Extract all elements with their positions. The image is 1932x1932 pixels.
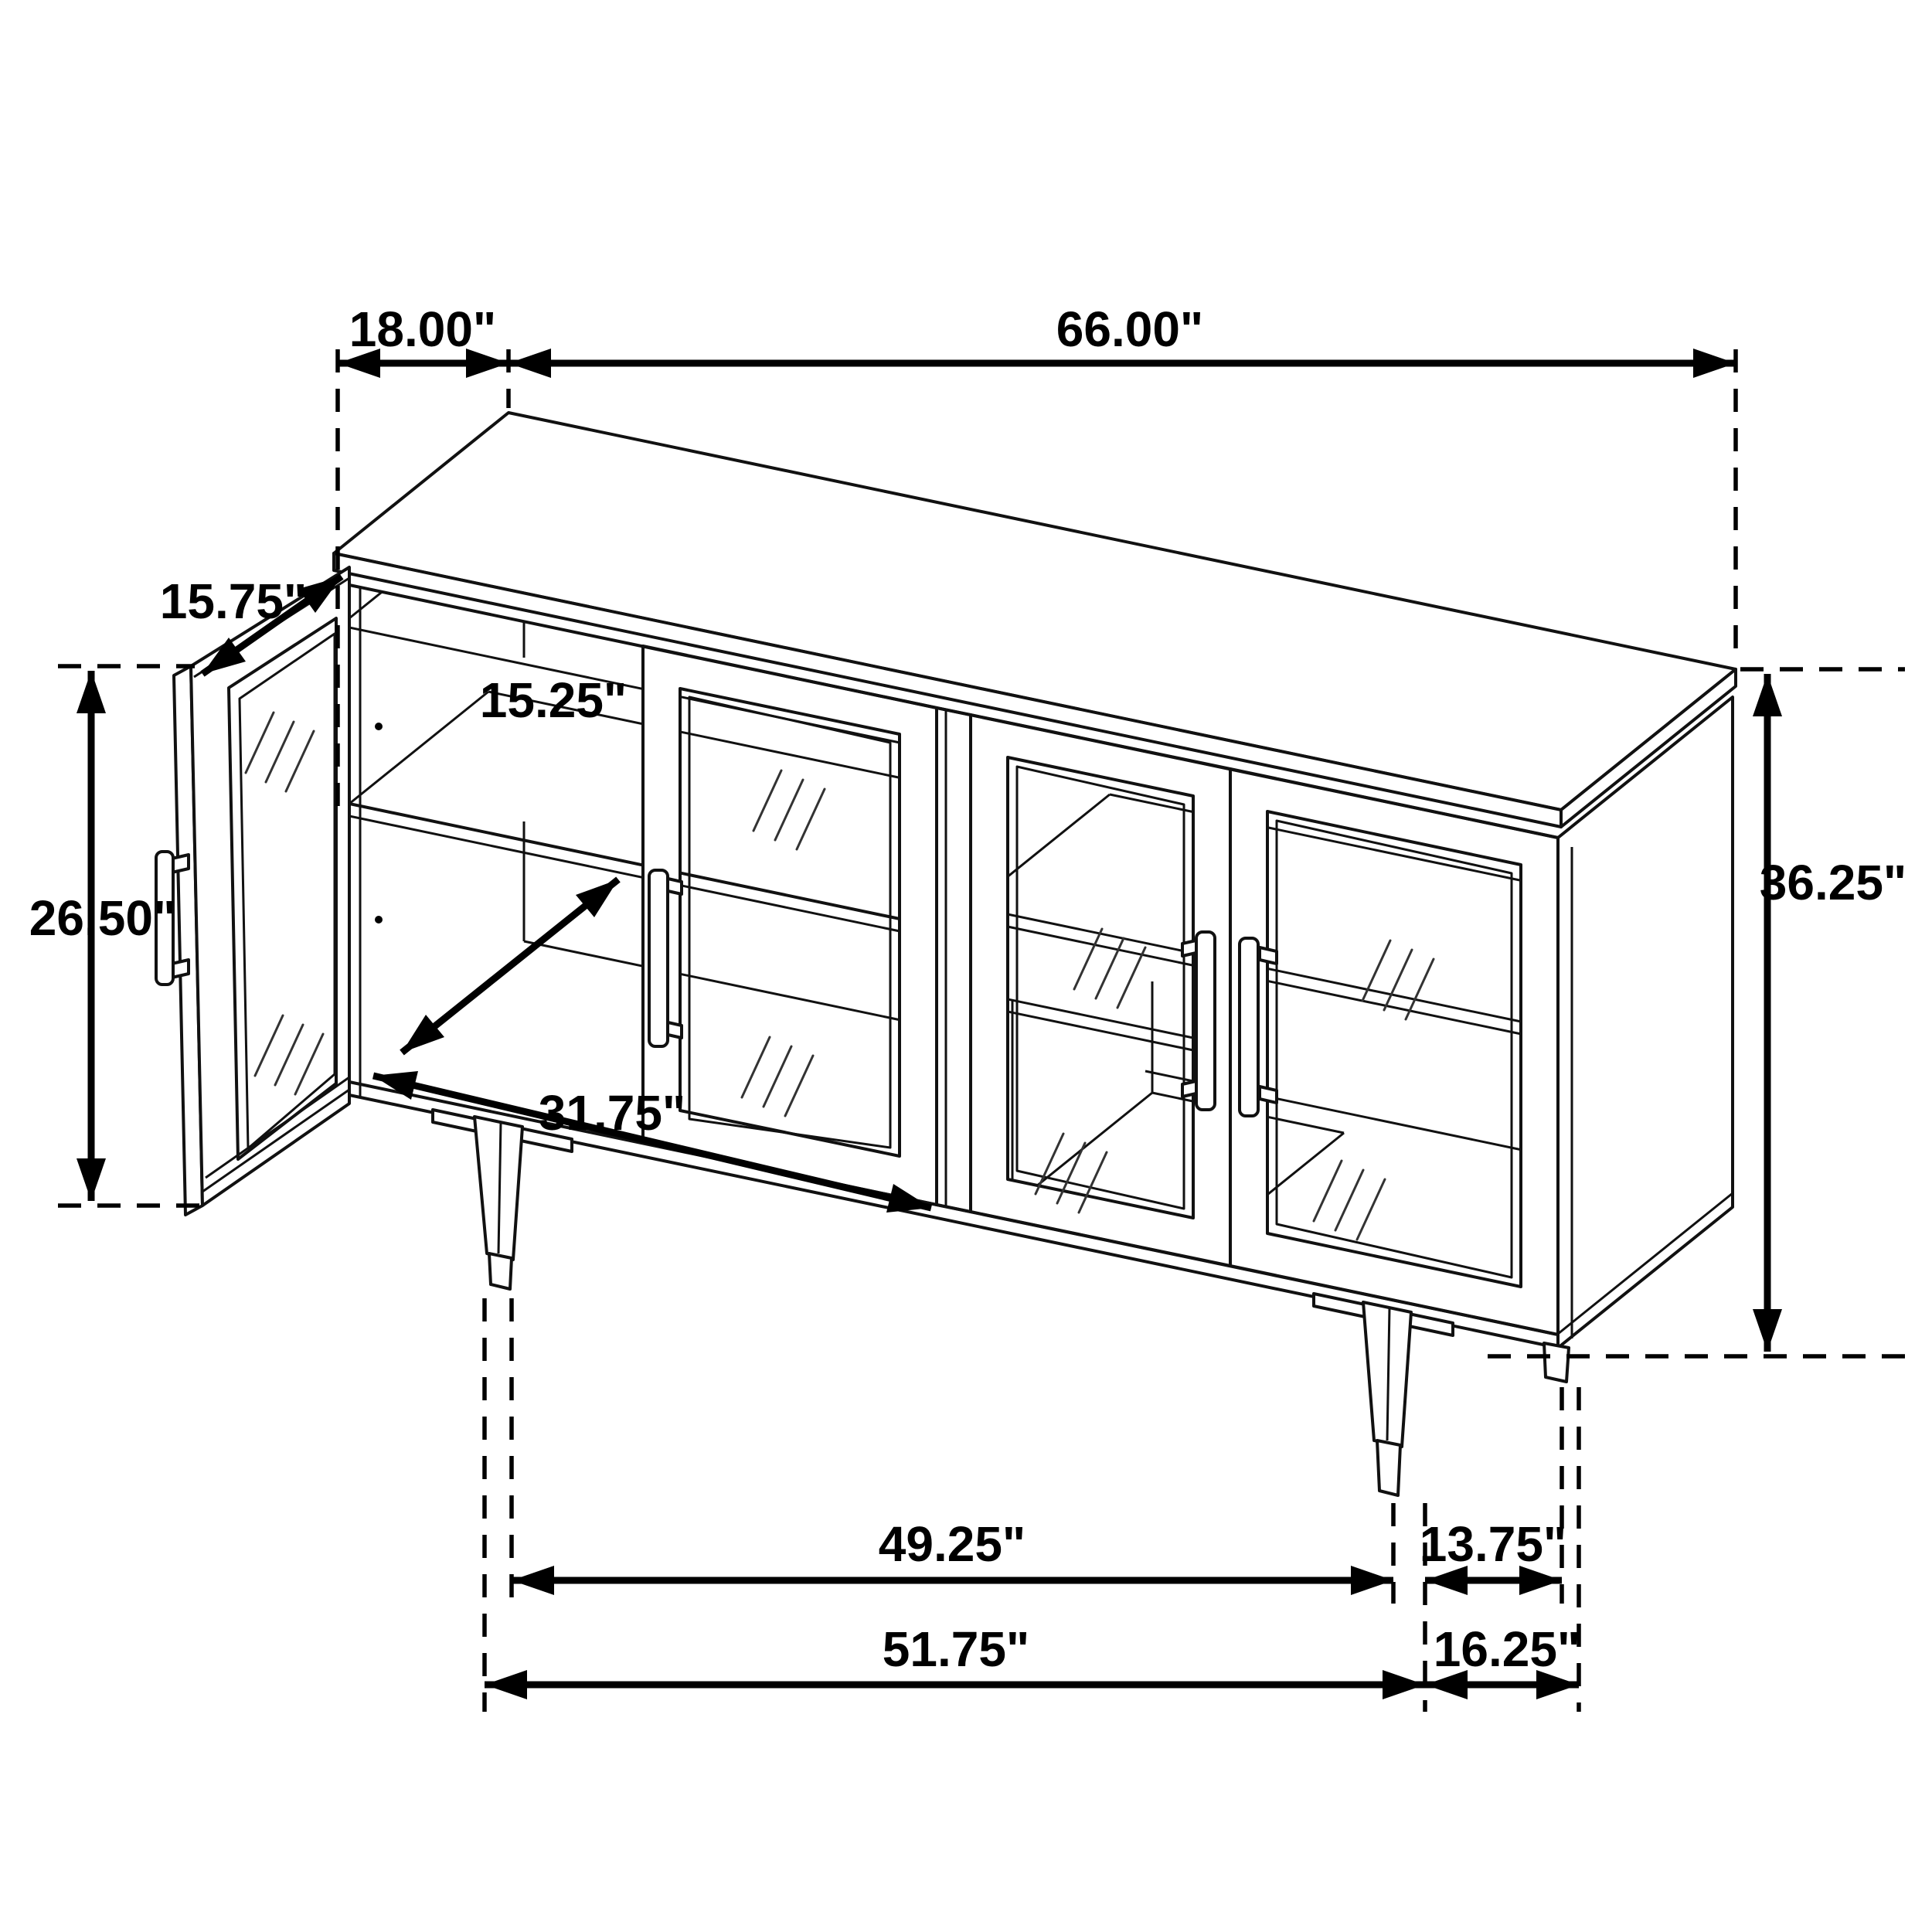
dim-label-overall-height: 36.25"	[1760, 855, 1907, 910]
dim-label-door-width: 15.75"	[160, 573, 308, 629]
shelf-pin-dot	[375, 723, 383, 730]
cabinet	[156, 413, 1736, 1495]
dimension-diagram: 18.00" 66.00" 15.75" 26.50" 15.25" 31.75…	[0, 0, 1932, 1932]
dim-label-depth-top: 18.00"	[349, 301, 497, 357]
dim-label-legs-span-inner: 49.25"	[879, 1516, 1026, 1572]
front-right-leg	[1314, 1294, 1453, 1495]
dim-label-shelf-depth: 15.25"	[480, 672, 628, 728]
dim-label-legs-depth-outer: 16.25"	[1434, 1621, 1581, 1677]
rear-right-leg	[1544, 1343, 1569, 1382]
dim-legs-depth-outer: 16.25"	[1425, 1621, 1580, 1699]
dim-label-legs-depth-inner: 13.75"	[1420, 1516, 1567, 1572]
dim-label-interior-width: 31.75"	[539, 1085, 686, 1141]
dim-label-legs-span-outer: 51.75"	[883, 1621, 1030, 1677]
dim-legs-span-outer: 51.75"	[485, 1621, 1425, 1699]
dim-legs-depth-inner: 13.75"	[1420, 1516, 1567, 1595]
dim-legs-span-inner: 49.25"	[512, 1516, 1393, 1595]
sideboard-drawing: 18.00" 66.00" 15.75" 26.50" 15.25" 31.75…	[0, 0, 1932, 1932]
shelf-pin-dot	[375, 916, 383, 923]
dim-bottom-extensions	[485, 1298, 1579, 1712]
dim-label-door-height: 26.50"	[29, 890, 177, 946]
dim-label-width-top: 66.00"	[1056, 301, 1204, 357]
